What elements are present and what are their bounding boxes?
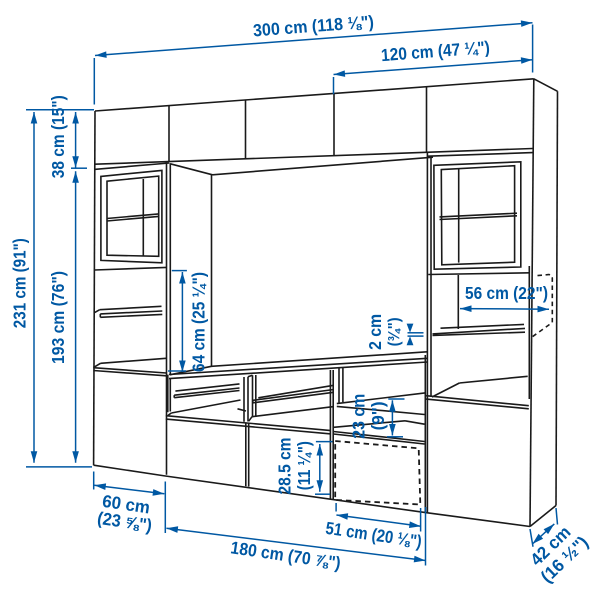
svg-text:51 cm (20 ⅛"): 51 cm (20 ⅛") [324,518,423,552]
svg-text:64 cm (25 ¼"): 64 cm (25 ¼") [188,272,208,372]
svg-text:28.5 cm: 28.5 cm [275,438,295,495]
svg-text:120 cm (47 ¼"): 120 cm (47 ¼") [380,37,490,65]
svg-text:231 cm (91"): 231 cm (91") [10,238,30,328]
svg-text:23 cm: 23 cm [349,394,369,439]
svg-text:2 cm: 2 cm [365,314,385,350]
svg-text:193 cm (76"): 193 cm (76") [48,271,68,364]
svg-text:(11 ¼"): (11 ¼") [294,441,314,490]
svg-text:(¾"): (¾") [386,317,403,346]
svg-text:(9"): (9") [368,401,388,430]
svg-text:38 cm (15"): 38 cm (15") [48,95,68,178]
svg-text:56 cm (22"): 56 cm (22") [465,283,548,303]
